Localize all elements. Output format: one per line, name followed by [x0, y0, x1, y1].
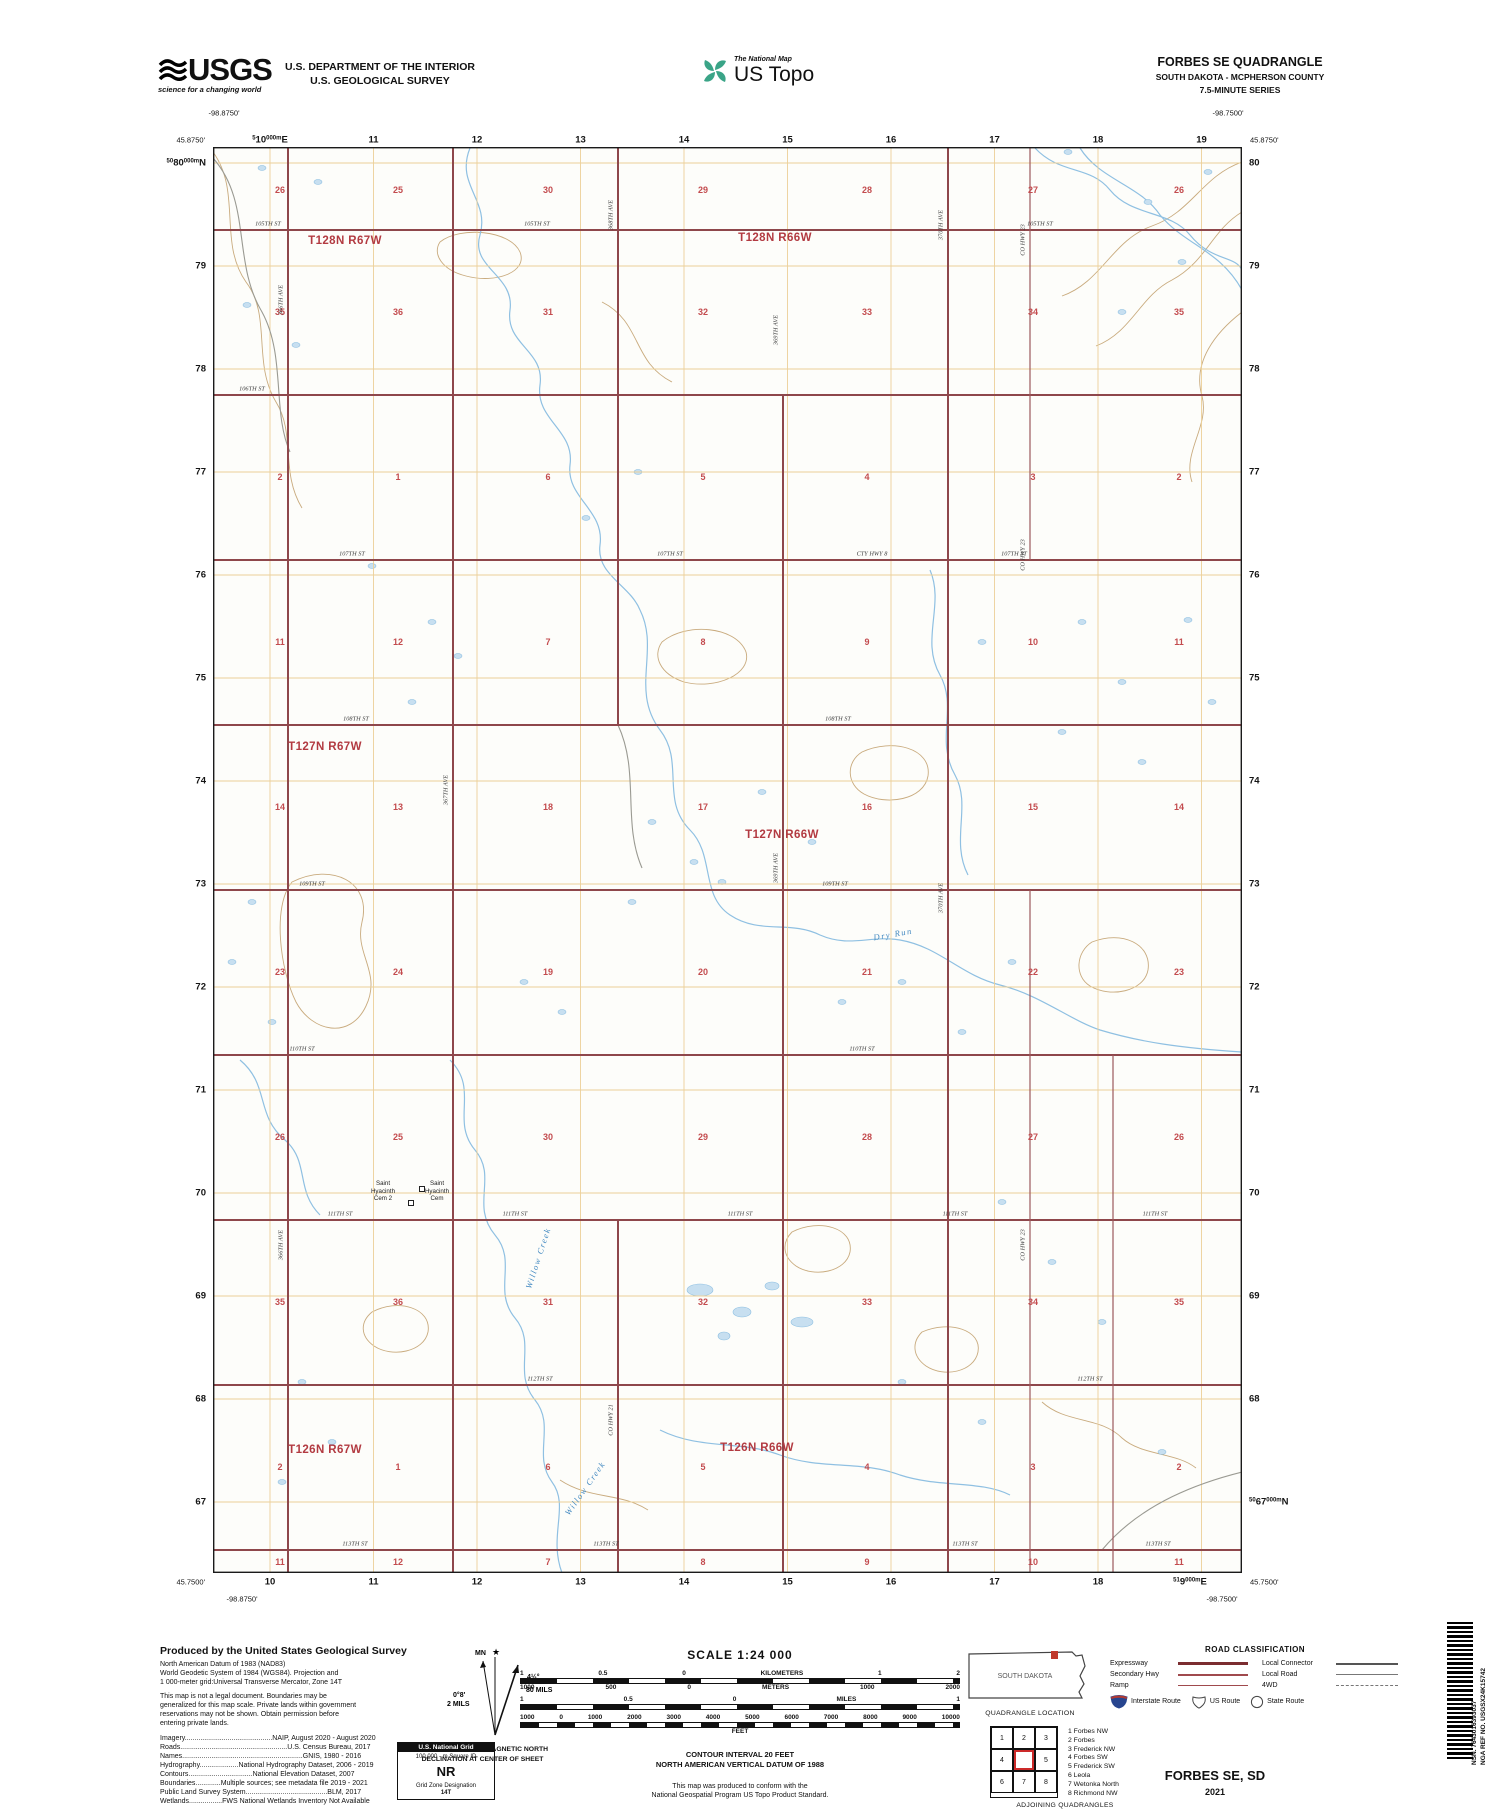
scale-tick-label: 7000: [824, 1714, 838, 1721]
pond: [268, 1020, 276, 1025]
section-number: 26: [1174, 185, 1184, 195]
pond: [1158, 1450, 1166, 1455]
section-number: 17: [698, 802, 708, 812]
map-paper: [213, 147, 1242, 1573]
scale-tick-label: KILOMETERS: [761, 1670, 804, 1677]
road-class-row: Secondary HwyLocal Road: [1110, 1671, 1400, 1678]
text-line: This map was produced to conform with th…: [520, 1782, 960, 1791]
section-number: 27: [1028, 1132, 1038, 1142]
section-number: 3: [1030, 472, 1035, 482]
road-class-sample: [1178, 1685, 1248, 1686]
section-number: 5: [700, 472, 705, 482]
section-number: 34: [1028, 1297, 1038, 1307]
scale-tick-label: 5000: [745, 1714, 759, 1721]
township-label: T126N R66W: [720, 1442, 794, 1454]
adjoining-quad-cell: 3: [1035, 1727, 1057, 1749]
section-number: 31: [543, 1297, 553, 1307]
road-name-label: 369TH AVE: [773, 315, 780, 345]
pond: [1204, 170, 1212, 175]
grid-label-top: 12: [472, 135, 483, 146]
section-number: 12: [393, 637, 403, 647]
pond: [292, 343, 300, 348]
road-name-label: 107TH ST: [657, 551, 683, 558]
road-name-label: 112TH ST: [1077, 1376, 1102, 1383]
road-name-label: 113TH ST: [342, 1541, 367, 1548]
road-name-label: 369TH AVE: [773, 853, 780, 883]
section-number: 5: [700, 1462, 705, 1472]
adjoining-quad-cell: 5: [1035, 1749, 1057, 1771]
road-name-label: 112TH ST: [527, 1376, 552, 1383]
section-number: 1: [395, 1462, 400, 1472]
scale-tick-label: 3000: [666, 1714, 680, 1721]
grid-label-top: 19: [1196, 135, 1207, 146]
road-name-label: 366TH AVE: [278, 1230, 285, 1260]
grid-label-top: 13: [575, 135, 586, 146]
text-line: CONTOUR INTERVAL 20 FEET: [520, 1750, 960, 1760]
road-name-label: 105TH ST: [524, 221, 550, 228]
road-classification: ROAD CLASSIFICATION ExpresswayLocal Conn…: [1110, 1645, 1400, 1709]
pond: [582, 516, 590, 521]
sheet-name: FORBES SE, SD: [1130, 1768, 1300, 1783]
corner-coordinate: -98.8750': [226, 1595, 257, 1604]
road-name-label: 111TH ST: [728, 1211, 753, 1218]
corner-coordinate: 45.7500': [1250, 1578, 1279, 1587]
corner-coordinate: -98.7500': [1206, 1595, 1237, 1604]
road-class-label: Expressway: [1110, 1660, 1178, 1667]
section-number: 33: [862, 307, 872, 317]
svg-text:★: ★: [492, 1647, 500, 1657]
quad-title: FORBES SE QUADRANGLE: [1085, 55, 1395, 69]
pond: [520, 980, 528, 985]
interstate-shield-icon: [1110, 1694, 1128, 1709]
pond: [628, 900, 636, 905]
grid-label-left: 72: [195, 982, 206, 993]
grid-label-bottom: 16: [886, 1577, 897, 1588]
pond: [1138, 760, 1146, 765]
section-number: 11: [275, 1557, 285, 1567]
section-number: 21: [862, 967, 872, 977]
dept-line2: U.S. GEOLOGICAL SURVEY: [255, 74, 505, 88]
road-name-label: 107TH ST: [339, 551, 365, 558]
quad-title-block: FORBES SE QUADRANGLE SOUTH DAKOTA - MCPH…: [1085, 55, 1395, 95]
township-label: T128N R67W: [308, 235, 382, 247]
map-canvas: [213, 147, 1242, 1573]
grid-label-bottom: 12: [472, 1577, 483, 1588]
grid-label-top: 16: [886, 135, 897, 146]
text-line: 7 Wetonka North: [1068, 1781, 1119, 1790]
section-number: 7: [545, 637, 550, 647]
text-line: 6 Leola: [1068, 1772, 1119, 1781]
section-number: 27: [1028, 185, 1038, 195]
pond: [687, 1284, 713, 1296]
gn-degrees: 0°8': [453, 1691, 466, 1699]
m-scale-labels: 10005000METERS10002000: [520, 1684, 960, 1692]
road-name-label: 110TH ST: [289, 1046, 314, 1053]
section-number: 11: [1174, 637, 1184, 647]
ustopo-logo: The National Map US Topo: [700, 55, 814, 87]
section-number: 15: [1028, 802, 1038, 812]
section-number: 14: [1174, 802, 1184, 812]
grid-label-left: 69: [195, 1291, 206, 1302]
department-heading: U.S. DEPARTMENT OF THE INTERIOR U.S. GEO…: [255, 60, 505, 88]
road-name-label: 109TH ST: [822, 881, 848, 888]
pond: [558, 1010, 566, 1015]
pond: [1064, 150, 1072, 155]
quad-subtitle: SOUTH DAKOTA - MCPHERSON COUNTY: [1085, 72, 1395, 82]
grid-label-right: 75: [1249, 673, 1260, 684]
road-name-label: 111TH ST: [503, 1211, 528, 1218]
section-number: 23: [1174, 967, 1184, 977]
road-class-sample: [1178, 1662, 1248, 1665]
section-number: 16: [862, 802, 872, 812]
grid-label-bottom: 15: [782, 1577, 793, 1588]
grid-label-right: 73: [1249, 879, 1260, 890]
section-number: 26: [275, 185, 285, 195]
text-line: 1 Forbes NW: [1068, 1728, 1119, 1737]
text-line: 5 Frederick SW: [1068, 1763, 1119, 1772]
dept-line1: U.S. DEPARTMENT OF THE INTERIOR: [255, 60, 505, 74]
road-class-rows: ExpresswayLocal ConnectorSecondary HwyLo…: [1110, 1660, 1400, 1689]
scale-tick-label: 0: [682, 1670, 686, 1677]
pond: [1118, 310, 1126, 315]
grid-label-left: 70: [195, 1188, 206, 1199]
ustopo-label: US Topo: [734, 63, 814, 87]
scale-tick-label: 1: [520, 1670, 524, 1677]
section-number: 11: [275, 637, 285, 647]
scale-tick-label: METERS: [762, 1684, 789, 1691]
route-shield-label: US Route: [1210, 1698, 1240, 1705]
scale-tick-label: 8000: [863, 1714, 877, 1721]
grid-label-left: 74: [195, 776, 206, 787]
pond: [838, 1000, 846, 1005]
pond: [1178, 260, 1186, 265]
grid-label-right: 78: [1249, 364, 1260, 375]
grid-label-right: 5067000mN: [1249, 1497, 1289, 1508]
corner-coordinate: -98.7500': [1212, 109, 1243, 118]
grid-label-top: 14: [679, 135, 690, 146]
road-name-label: 108TH ST: [343, 716, 369, 723]
pond: [898, 980, 906, 985]
usgs-wave-icon: [158, 55, 188, 85]
section-number: 18: [543, 802, 553, 812]
scale-tick-label: 0.5: [598, 1670, 607, 1677]
section-number: 26: [275, 1132, 285, 1142]
scale-tick-label: 1000: [588, 1714, 602, 1721]
text-line: 2 Forbes: [1068, 1737, 1119, 1746]
grid-label-top: 510000mE: [252, 135, 288, 146]
road-name-label: 105TH ST: [1027, 221, 1053, 228]
scale-tick-label: 6000: [784, 1714, 798, 1721]
pond: [978, 1420, 986, 1425]
grid-label-left: 5080000mN: [167, 158, 207, 169]
pond: [228, 960, 236, 965]
road-name-label: 111TH ST: [328, 1211, 353, 1218]
section-number: 22: [1028, 967, 1038, 977]
km-scale-labels: 10.50KILOMETERS12: [520, 1670, 960, 1678]
pond: [428, 620, 436, 625]
section-number: 23: [275, 967, 285, 977]
nsn-number: NSN. 7643016393037: [1471, 1701, 1478, 1765]
feet-scale-labels: 1000010002000300040005000600070008000900…: [520, 1714, 960, 1722]
quad-series: 7.5-MINUTE SERIES: [1085, 85, 1395, 95]
section-number: 6: [545, 1462, 550, 1472]
section-number: 8: [700, 1557, 705, 1567]
road-name-label: CO HWY 21: [608, 1404, 615, 1436]
road-name-label: 111TH ST: [943, 1211, 968, 1218]
corner-coordinate: 45.8750': [176, 136, 205, 145]
miles-scale-labels: 10.50MILES1: [520, 1696, 960, 1704]
section-number: 10: [1028, 637, 1038, 647]
grid-label-bottom: 11: [368, 1577, 378, 1588]
road-name-label: 108TH ST: [825, 716, 851, 723]
section-number: 4: [864, 1462, 869, 1472]
us-route-shield-icon: [1191, 1695, 1207, 1709]
section-number: 6: [545, 472, 550, 482]
road-class-row: ExpresswayLocal Connector: [1110, 1660, 1400, 1667]
conformance-note: This map was produced to conform with th…: [520, 1782, 960, 1800]
section-number: 19: [543, 967, 553, 977]
scale-tick-label: 9000: [902, 1714, 916, 1721]
pond: [1118, 680, 1126, 685]
grid-label-right: 69: [1249, 1291, 1260, 1302]
text-line: NORTH AMERICAN VERTICAL DATUM OF 1988: [520, 1760, 960, 1770]
road-name-label: 110TH ST: [849, 1046, 874, 1053]
section-number: 2: [277, 472, 282, 482]
pond: [1078, 620, 1086, 625]
township-label: T127N R67W: [288, 741, 362, 753]
township-label: T126N R67W: [288, 1444, 362, 1456]
scale-tick-label: 0: [559, 1714, 563, 1721]
text-line: 4 Forbes SW: [1068, 1754, 1119, 1763]
road-name-label: CO HWY 23: [1020, 539, 1027, 571]
section-number: 35: [1174, 1297, 1184, 1307]
usng-box: U.S. National Grid 100,000 - m Square ID…: [397, 1742, 495, 1800]
section-number: 32: [698, 307, 708, 317]
quad-location-marker: [1051, 1651, 1058, 1659]
pond: [978, 640, 986, 645]
sheet-title-block: FORBES SE, SD 2021: [1130, 1768, 1300, 1797]
pond: [898, 1380, 906, 1385]
pond: [791, 1317, 813, 1327]
section-number: 35: [1174, 307, 1184, 317]
pond: [1208, 700, 1216, 705]
pond: [408, 700, 416, 705]
section-number: 2: [277, 1462, 282, 1472]
section-number: 9: [864, 1557, 869, 1567]
scale-tick-label: 500: [605, 1684, 616, 1691]
feet-unit: FEET: [520, 1728, 960, 1736]
section-number: 32: [698, 1297, 708, 1307]
pond: [248, 900, 256, 905]
mn-label: MN: [475, 1650, 486, 1657]
scale-tick-label: 10000: [942, 1714, 960, 1721]
section-number: 7: [545, 1557, 550, 1567]
section-number: 25: [393, 1132, 403, 1142]
pond: [733, 1307, 751, 1317]
grid-label-bottom: 17: [989, 1577, 1000, 1588]
route-shield-item: State Route: [1250, 1695, 1304, 1709]
scale-tick-label: 1: [520, 1696, 524, 1703]
section-number: 20: [698, 967, 708, 977]
pond: [243, 303, 251, 308]
scale-tick-label: 1000: [860, 1684, 874, 1691]
corner-coordinate: -98.8750': [208, 109, 239, 118]
pond: [368, 564, 376, 569]
road-class-sample: [1336, 1685, 1398, 1686]
road-class-label: Secondary Hwy: [1110, 1671, 1178, 1678]
section-number: 29: [698, 1132, 708, 1142]
grid-label-bottom: 10: [265, 1577, 276, 1588]
section-number: 36: [393, 307, 403, 317]
road-name-label: 368TH AVE: [608, 200, 615, 230]
scale-tick-label: 1: [878, 1670, 882, 1677]
road-class-label: Ramp: [1110, 1682, 1178, 1689]
grid-label-right: 80: [1249, 158, 1260, 169]
usng-title: U.S. National Grid: [398, 1743, 494, 1752]
road-class-label: 4WD: [1262, 1682, 1336, 1689]
pond: [258, 166, 266, 171]
section-number: 36: [393, 1297, 403, 1307]
cemetery-label: SaintHyacinthCem 2: [371, 1180, 395, 1203]
ustopo-pinwheel-icon: [700, 55, 730, 87]
scale-tick-label: 1000: [520, 1684, 534, 1691]
grid-label-right: 71: [1249, 1085, 1260, 1096]
current-quad-cell: [1013, 1749, 1035, 1771]
pond: [278, 1480, 286, 1485]
section-number: 34: [1028, 307, 1038, 317]
section-number: 28: [862, 1132, 872, 1142]
scale-tick-label: 0: [687, 1684, 691, 1691]
section-number: 31: [543, 307, 553, 317]
section-number: 30: [543, 185, 553, 195]
section-number: 28: [862, 185, 872, 195]
road-name-label: 367TH AVE: [443, 775, 450, 805]
corner-coordinate: 45.7500': [176, 1578, 205, 1587]
adjoining-quad-cell: 1: [991, 1727, 1013, 1749]
pond: [454, 654, 462, 659]
pond: [998, 1200, 1006, 1205]
usng-zone: 14T: [398, 1789, 494, 1799]
grid-label-bottom: 14: [679, 1577, 690, 1588]
grid-label-right: 74: [1249, 776, 1260, 787]
section-number: 25: [393, 185, 403, 195]
section-number: 29: [698, 185, 708, 195]
pond: [1008, 960, 1016, 965]
adjoining-list: 1 Forbes NW2 Forbes3 Frederick NW4 Forbe…: [1068, 1728, 1119, 1798]
road-name-label: 113TH ST: [952, 1541, 977, 1548]
road-class-label: Local Road: [1262, 1671, 1336, 1678]
road-name-label: 366TH AVE: [278, 285, 285, 315]
section-number: 9: [864, 637, 869, 647]
grid-label-left: 77: [195, 467, 206, 478]
adjoining-grid: 12345678: [990, 1726, 1058, 1798]
route-shields-row: Interstate RouteUS RouteState Route: [1110, 1694, 1400, 1709]
cemetery-icon: [408, 1200, 414, 1206]
road-name-label: CO HWY 23: [1020, 224, 1027, 256]
road-class-sample: [1178, 1674, 1248, 1676]
text-line: 3 Frederick NW: [1068, 1746, 1119, 1755]
section-number: 11: [1174, 1557, 1184, 1567]
usgs-topo-sheet: USGS science for a changing world U.S. D…: [0, 0, 1500, 1813]
grid-label-left: 75: [195, 673, 206, 684]
scale-tick-label: 4000: [706, 1714, 720, 1721]
scale-block: SCALE 1:24 000 10.50KILOMETERS12 1000500…: [520, 1648, 960, 1800]
road-name-label: CO HWY 23: [1020, 1229, 1027, 1261]
scale-tick-label: 0.5: [624, 1696, 633, 1703]
road-name-label: 105TH ST: [255, 221, 281, 228]
scale-tick-label: 0: [733, 1696, 737, 1703]
grid-label-left: 76: [195, 570, 206, 581]
section-number: 2: [1176, 472, 1181, 482]
section-number: 8: [700, 637, 705, 647]
pond: [718, 1332, 730, 1340]
grid-label-right: 72: [1249, 982, 1260, 993]
contour-interval-note: CONTOUR INTERVAL 20 FEETNORTH AMERICAN V…: [520, 1750, 960, 1770]
text-line: 8 Richmond NW: [1068, 1790, 1119, 1799]
grid-label-right: 76: [1249, 570, 1260, 581]
section-number: 3: [1030, 1462, 1035, 1472]
usng-square-id: NR: [398, 1760, 494, 1783]
road-name-label: 109TH ST: [299, 881, 325, 888]
route-shield-label: State Route: [1267, 1698, 1304, 1705]
route-shield-item: US Route: [1191, 1695, 1240, 1709]
road-name-label: 111TH ST: [1143, 1211, 1168, 1218]
section-number: 14: [275, 802, 285, 812]
adjoining-quads: 12345678 1 Forbes NW2 Forbes3 Frederick …: [990, 1726, 1140, 1809]
pond: [1144, 200, 1152, 205]
adjoining-quad-cell: 2: [1013, 1727, 1035, 1749]
road-name-label: 113TH ST: [1145, 1541, 1170, 1548]
section-number: 10: [1028, 1557, 1038, 1567]
state-name: SOUTH DAKOTA: [998, 1673, 1053, 1680]
grid-label-left: 78: [195, 364, 206, 375]
pond: [765, 1282, 779, 1290]
quadrangle-location: SOUTH DAKOTA QUADRANGLE LOCATION: [963, 1645, 1097, 1717]
section-number: 1: [395, 472, 400, 482]
grid-label-right: 79: [1249, 261, 1260, 272]
grid-label-top: 15: [782, 135, 793, 146]
grid-label-bottom: 519000mE: [1173, 1577, 1207, 1588]
grid-label-right: 68: [1249, 1394, 1260, 1405]
section-number: 30: [543, 1132, 553, 1142]
pond: [690, 860, 698, 865]
pond: [1184, 618, 1192, 623]
section-number: 12: [393, 1557, 403, 1567]
sheet-year: 2021: [1130, 1787, 1300, 1797]
miles-scale-bar: [520, 1704, 960, 1710]
section-number: 13: [393, 802, 403, 812]
pond: [298, 1380, 306, 1385]
road-name-label: 113TH ST: [593, 1541, 618, 1548]
road-name-label: 370TH AVE: [938, 883, 945, 913]
scale-tick-label: MILES: [836, 1696, 856, 1703]
corner-coordinate: 45.8750': [1250, 136, 1279, 145]
adjoining-caption: ADJOINING QUADRANGLES: [990, 1802, 1140, 1809]
barcode: [1447, 1622, 1473, 1760]
grid-label-bottom: 18: [1093, 1577, 1104, 1588]
grid-label-left: 73: [195, 879, 206, 890]
route-shield-label: Interstate Route: [1131, 1698, 1181, 1705]
road-class-label: Local Connector: [1262, 1660, 1336, 1667]
adjoining-quad-cell: 7: [1013, 1771, 1035, 1793]
adjoining-quad-cell: 6: [991, 1771, 1013, 1793]
adjoining-quad-cell: 4: [991, 1749, 1013, 1771]
pond: [1098, 1320, 1106, 1325]
gn-mils: 2 MILS: [447, 1701, 470, 1708]
adjoining-quad-cell: 8: [1035, 1771, 1057, 1793]
scale-tick-label: 2000: [946, 1684, 960, 1691]
township-label: T127N R66W: [745, 829, 819, 841]
